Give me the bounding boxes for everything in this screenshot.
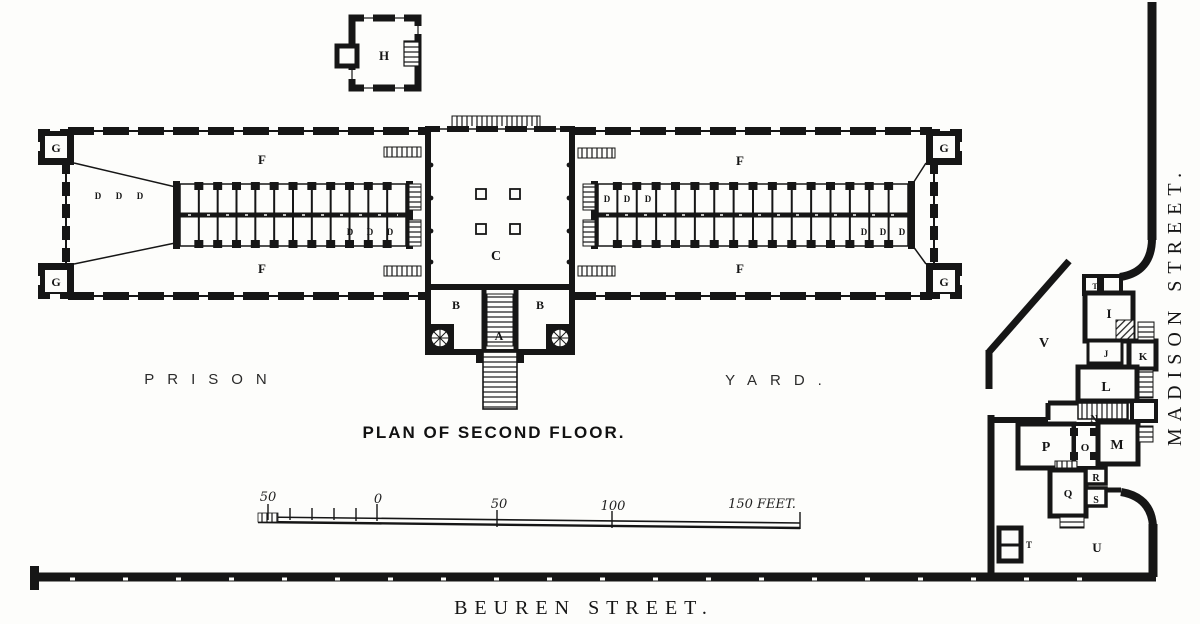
- room-label-h: H: [379, 48, 389, 63]
- room-label-g: G: [939, 141, 948, 155]
- spiral-stair-left: [426, 324, 454, 352]
- scale-label-100: 100: [601, 499, 626, 514]
- scale-label-50-right: 50: [491, 497, 508, 512]
- stair-ik: [1116, 320, 1134, 339]
- plan-title: PLAN OF SECOND FLOOR.: [363, 423, 626, 442]
- yard-text-yard: YARD.: [725, 372, 835, 389]
- room-label-o: O: [1081, 442, 1090, 454]
- privy-bottom: [999, 528, 1021, 561]
- room-label-d: D: [387, 227, 394, 237]
- left-wing: [66, 131, 430, 296]
- room-label-d: D: [95, 191, 102, 201]
- room-label-u: U: [1092, 540, 1102, 555]
- right-wing: [570, 131, 934, 296]
- room-label-d: D: [367, 227, 374, 237]
- room-label-n: N: [1090, 414, 1098, 425]
- room-label-a: A: [495, 329, 504, 343]
- room-label-f: F: [736, 153, 744, 168]
- room-label-l: L: [1101, 380, 1110, 395]
- room-label-v: V: [1039, 336, 1049, 351]
- street-name-madison: MADISON STREET.: [1164, 166, 1186, 446]
- room-label-b: B: [452, 298, 460, 312]
- scale-bar: 50 0 50 100 150 FEET.: [258, 490, 800, 529]
- room-label-f: F: [736, 261, 744, 276]
- room-label-i: I: [1106, 306, 1111, 321]
- room-label-f: F: [258, 152, 266, 167]
- room-label-c: C: [491, 249, 501, 264]
- room-label-d: D: [880, 227, 887, 237]
- street-name-beuren: BEUREN STREET.: [454, 597, 714, 619]
- room-label-f: F: [258, 261, 266, 276]
- room-labels: HGGGGFFFFDDDDDDDDDDDDCBBAVIJKLNPOMRSQTTU: [51, 48, 1147, 555]
- room-label-d: D: [137, 191, 144, 201]
- room-label-q: Q: [1064, 488, 1073, 500]
- veranda-n: [1078, 403, 1128, 419]
- spiral-stair-right: [546, 324, 574, 352]
- room-label-d: D: [347, 227, 354, 237]
- room-label-k: K: [1139, 351, 1148, 363]
- scale-label-50-left: 50: [260, 490, 277, 505]
- room-label-d: D: [645, 194, 652, 204]
- room-label-g: G: [51, 141, 60, 155]
- room-label-m: M: [1110, 438, 1123, 453]
- scale-label-0: 0: [374, 492, 382, 507]
- room-label-t: T: [1026, 540, 1032, 550]
- yard-text-prison: PRISON: [144, 371, 280, 388]
- room-label-d: D: [116, 191, 123, 201]
- scale-label-150-feet: 150 FEET.: [728, 497, 796, 512]
- room-label-t: T: [1092, 282, 1098, 291]
- room-label-d: D: [604, 194, 611, 204]
- room-label-p: P: [1042, 440, 1051, 455]
- room-label-r: R: [1092, 473, 1100, 484]
- entrance-steps: [476, 352, 524, 409]
- room-label-s: S: [1093, 495, 1099, 506]
- room-label-j: J: [1104, 349, 1109, 359]
- scanned-plan-page: 50 0 50 100 150 FEET. PRISON YARD. PLAN …: [0, 0, 1200, 624]
- room-label-g: G: [51, 275, 60, 289]
- room-label-d: D: [899, 227, 906, 237]
- prison-floor-plan-svg: 50 0 50 100 150 FEET. PRISON YARD. PLAN …: [0, 0, 1200, 624]
- room-label-b: B: [536, 298, 544, 312]
- room-label-g: G: [939, 275, 948, 289]
- room-label-d: D: [861, 227, 868, 237]
- room-label-d: D: [624, 194, 631, 204]
